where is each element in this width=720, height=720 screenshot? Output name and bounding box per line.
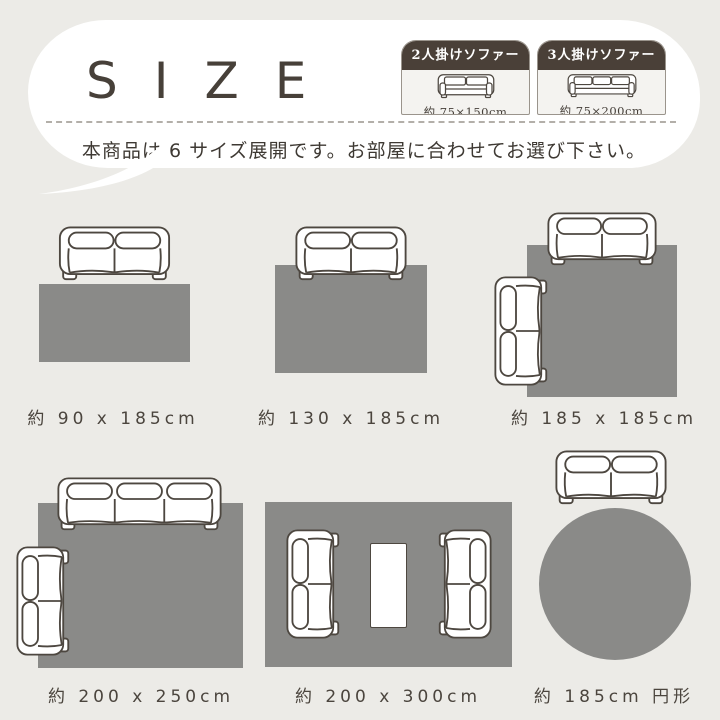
size-label-185-round: 約 185cm 円形 bbox=[534, 682, 694, 707]
sofa-side-2seat-icon bbox=[494, 276, 549, 386]
rug-185x185 bbox=[527, 245, 677, 397]
sofa-top-2seat-icon bbox=[555, 450, 667, 506]
sofa-top-2seat-icon bbox=[547, 212, 657, 267]
rug-185-round bbox=[539, 508, 691, 660]
sofa-side-2seat-icon bbox=[286, 529, 341, 639]
dashed-divider bbox=[46, 121, 676, 123]
page-title: SIZE bbox=[86, 52, 342, 110]
size-label-200x300: 約 200 x 300cm bbox=[295, 682, 481, 707]
rug-size-guide: SIZE 本商品は 6 サイズ展開です。お部屋に合わせてお選び下さい。 2人掛け… bbox=[0, 0, 720, 720]
sofa-front-3seat-icon bbox=[566, 74, 638, 98]
coffee-table-icon bbox=[370, 543, 407, 628]
legend-card-2seater-size: 約 75×150cm bbox=[402, 104, 529, 115]
legend-card-3seater-body: 約 75×200cm bbox=[538, 70, 665, 115]
legend-card-2seater-body: 約 75×150cm bbox=[402, 70, 529, 115]
size-label-200x250: 約 200 x 250cm bbox=[48, 682, 234, 707]
sofa-top-2seat-icon bbox=[58, 226, 171, 282]
legend-card-2seater-title: 2人掛けソファー bbox=[402, 41, 529, 70]
legend-card-2seater: 2人掛けソファー 約 75×150cm bbox=[401, 40, 530, 115]
sofa-front-2seat-icon bbox=[436, 74, 496, 99]
size-label-130x185: 約 130 x 185cm bbox=[258, 404, 444, 429]
rug-90x185 bbox=[39, 284, 190, 362]
sofa-side-2seat-icon bbox=[437, 529, 492, 639]
sofa-top-3seat-icon bbox=[57, 477, 222, 532]
size-label-90x185: 約 90 x 185cm bbox=[27, 404, 198, 429]
speech-bubble-tail bbox=[36, 150, 166, 198]
legend-card-3seater-title: 3人掛けソファー bbox=[538, 41, 665, 70]
legend-card-3seater-size: 約 75×200cm bbox=[538, 103, 665, 115]
legend-card-3seater: 3人掛けソファー 約 75×200cm bbox=[537, 40, 666, 115]
sofa-side-2seat-icon bbox=[16, 546, 71, 656]
sofa-top-2seat-icon bbox=[295, 226, 407, 282]
size-label-185x185: 約 185 x 185cm bbox=[511, 404, 697, 429]
